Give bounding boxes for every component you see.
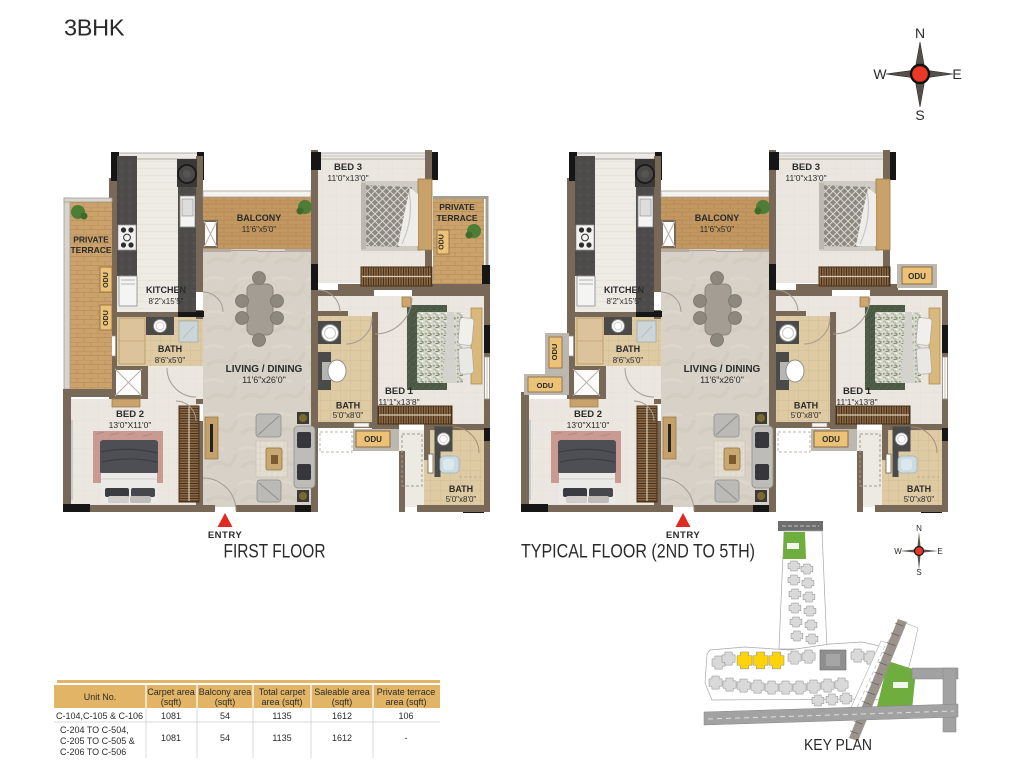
svg-text:C-204 TO C-504,: C-204 TO C-504, — [60, 725, 129, 735]
svg-text:BATH: BATH — [449, 484, 473, 494]
svg-text:11'6"x5'0": 11'6"x5'0" — [242, 225, 277, 234]
svg-text:C-205 TO C-505 &: C-205 TO C-505 & — [60, 736, 135, 746]
svg-text:8'6"x5'0": 8'6"x5'0" — [155, 356, 186, 365]
svg-text:BED 1: BED 1 — [385, 386, 414, 397]
svg-text:Carpet area: Carpet area — [147, 687, 195, 697]
svg-text:ODU: ODU — [439, 234, 446, 250]
svg-text:TERRACE: TERRACE — [436, 213, 477, 223]
svg-text:BATH: BATH — [336, 401, 360, 411]
svg-text:TYPICAL FLOOR (2ND TO 5TH): TYPICAL FLOOR (2ND TO 5TH) — [521, 542, 755, 563]
svg-text:(sqft): (sqft) — [215, 697, 236, 707]
svg-text:54: 54 — [220, 733, 230, 743]
svg-text:11'0"x13'0": 11'0"x13'0" — [327, 173, 368, 183]
svg-text:PRIVATE: PRIVATE — [73, 235, 109, 245]
svg-text:1135: 1135 — [272, 733, 291, 743]
svg-text:BATH: BATH — [158, 344, 182, 354]
svg-text:Private terrace: Private terrace — [377, 687, 436, 697]
svg-text:Total carpet: Total carpet — [259, 687, 306, 697]
svg-text:area (sqft): area (sqft) — [385, 697, 426, 707]
svg-text:106: 106 — [398, 711, 413, 721]
svg-text:S: S — [915, 107, 924, 123]
svg-text:13'0"X11'0": 13'0"X11'0" — [109, 420, 152, 430]
svg-text:Balcony area: Balcony area — [199, 687, 252, 697]
svg-text:8'2"x15'5": 8'2"x15'5" — [149, 297, 184, 306]
svg-text:(sqft): (sqft) — [332, 697, 353, 707]
svg-text:C-104,C-105 & C-106: C-104,C-105 & C-106 — [56, 711, 143, 721]
svg-text:ODU: ODU — [908, 272, 926, 281]
svg-text:-: - — [405, 733, 408, 743]
svg-text:TERRACE: TERRACE — [70, 245, 111, 255]
svg-text:LIVING / DINING: LIVING / DINING — [226, 364, 303, 375]
svg-text:Unit No.: Unit No. — [84, 692, 117, 702]
svg-text:BED 2: BED 2 — [116, 409, 144, 420]
svg-text:W: W — [894, 547, 902, 556]
svg-text:1081: 1081 — [161, 733, 181, 743]
svg-text:ENTRY: ENTRY — [208, 530, 243, 541]
svg-text:PRIVATE: PRIVATE — [439, 202, 475, 212]
svg-text:5'0"x8'0": 5'0"x8'0" — [333, 411, 364, 420]
svg-text:1612: 1612 — [332, 733, 352, 743]
svg-text:FIRST FLOOR: FIRST FLOOR — [224, 542, 326, 563]
svg-text:N: N — [915, 25, 925, 41]
svg-text:1135: 1135 — [272, 711, 291, 721]
svg-text:1612: 1612 — [332, 711, 352, 721]
svg-text:W: W — [873, 66, 887, 82]
svg-text:N: N — [916, 524, 922, 533]
svg-text:KEY PLAN: KEY PLAN — [804, 737, 872, 754]
svg-text:BED 3: BED 3 — [334, 162, 362, 173]
svg-text:(sqft): (sqft) — [161, 697, 182, 707]
svg-text:3BHK: 3BHK — [64, 15, 125, 41]
svg-text:54: 54 — [220, 711, 230, 721]
svg-text:ODU: ODU — [364, 435, 382, 444]
svg-text:ODU: ODU — [103, 272, 110, 288]
svg-text:S: S — [916, 568, 921, 577]
svg-text:E: E — [952, 66, 961, 82]
svg-text:ODU: ODU — [550, 344, 559, 361]
svg-text:ODU: ODU — [537, 381, 554, 390]
svg-text:BALCONY: BALCONY — [237, 213, 282, 223]
svg-text:5'0"x8'0": 5'0"x8'0" — [446, 495, 477, 504]
svg-text:1081: 1081 — [161, 711, 181, 721]
svg-text:C-206 TO C-506: C-206 TO C-506 — [60, 747, 126, 757]
svg-text:KITCHEN: KITCHEN — [146, 285, 186, 295]
svg-text:11'6"x26'0": 11'6"x26'0" — [242, 375, 286, 385]
svg-text:ODU: ODU — [103, 310, 110, 326]
svg-text:11'1"x13'8": 11'1"x13'8" — [378, 397, 419, 407]
svg-text:area (sqft): area (sqft) — [261, 697, 302, 707]
svg-text:E: E — [937, 547, 942, 556]
svg-text:Saleable area: Saleable area — [314, 687, 370, 697]
